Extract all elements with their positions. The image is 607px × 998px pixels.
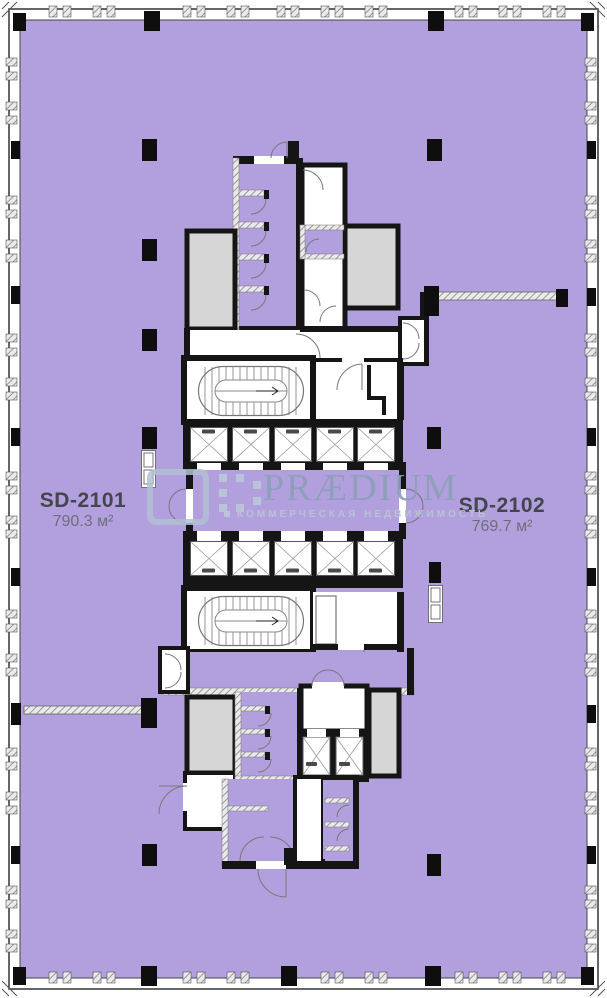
elevator-bank-lower: [183, 531, 403, 588]
vestibule-right: [400, 318, 426, 364]
shaft-room-lower-left: [187, 697, 235, 773]
unit-code: SD-2101: [19, 489, 147, 512]
unit-label-sd-2102[interactable]: SD-2102 769.7 м²: [437, 494, 567, 536]
elevator-lobby: [169, 462, 423, 539]
shaft-room-upper-left: [187, 231, 235, 329]
restrooms-upper: [233, 141, 303, 333]
floor-plan: SD-2101 790.3 м² SD-2102 769.7 м² PRÆDIU…: [0, 0, 607, 998]
unit-area: 769.7 м²: [437, 517, 567, 536]
demising-wall-left: [24, 706, 142, 714]
service-elevators: [297, 729, 369, 782]
unit-label-sd-2101[interactable]: SD-2101 790.3 м²: [19, 489, 147, 531]
shaft-room-lower-right: [369, 690, 399, 776]
stairwell-upper: [184, 358, 313, 422]
demising-wall-right: [436, 292, 558, 300]
core-column: [288, 141, 299, 160]
unit-area: 790.3 м²: [19, 512, 147, 531]
unit-code: SD-2102: [437, 494, 567, 517]
elevator-bank-upper: [183, 419, 403, 470]
shaft-room-upper-right: [345, 226, 398, 308]
